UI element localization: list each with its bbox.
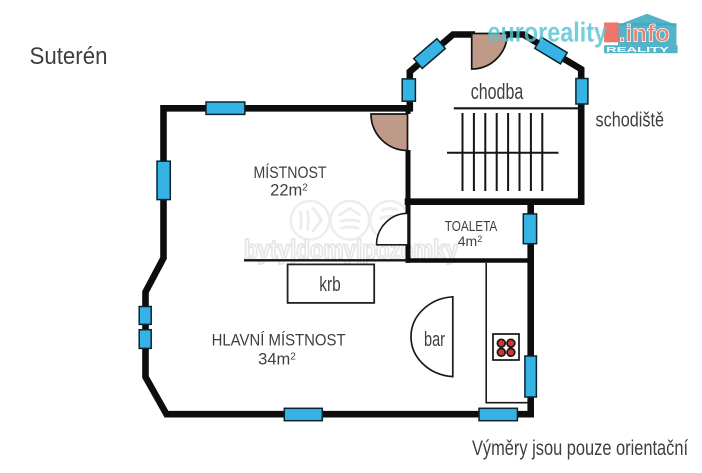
svg-text:.info: .info (619, 21, 670, 48)
svg-text:HLAVNÍ MÍSTNOST: HLAVNÍ MÍSTNOST (212, 331, 346, 350)
svg-text:euroreality: euroreality (488, 17, 608, 48)
svg-text:bar: bar (424, 329, 445, 351)
svg-text:REALITY: REALITY (606, 45, 669, 54)
svg-text:schodiště: schodiště (596, 110, 665, 132)
svg-text:chodba: chodba (471, 79, 524, 104)
svg-text:Výměry jsou pouze orientační: Výměry jsou pouze orientační (472, 436, 688, 460)
svg-text:MÍSTNOST: MÍSTNOST (254, 163, 327, 182)
svg-text:krb: krb (319, 274, 341, 296)
svg-text:Suterén: Suterén (30, 43, 108, 70)
